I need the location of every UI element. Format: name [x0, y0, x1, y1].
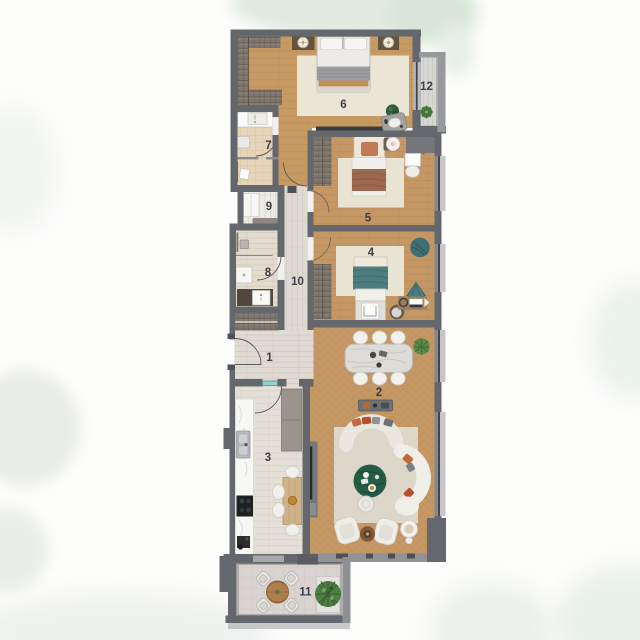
svg-text:8: 8	[265, 267, 272, 279]
svg-text:4: 4	[368, 247, 375, 259]
svg-text:7: 7	[265, 140, 271, 152]
svg-text:12: 12	[420, 81, 433, 93]
svg-text:3: 3	[265, 452, 271, 464]
svg-text:5: 5	[365, 213, 372, 225]
svg-text:1: 1	[266, 352, 273, 364]
svg-text:11: 11	[299, 587, 312, 599]
svg-text:10: 10	[291, 276, 304, 288]
svg-text:9: 9	[266, 201, 272, 213]
svg-text:6: 6	[340, 99, 346, 111]
svg-text:2: 2	[376, 387, 382, 399]
